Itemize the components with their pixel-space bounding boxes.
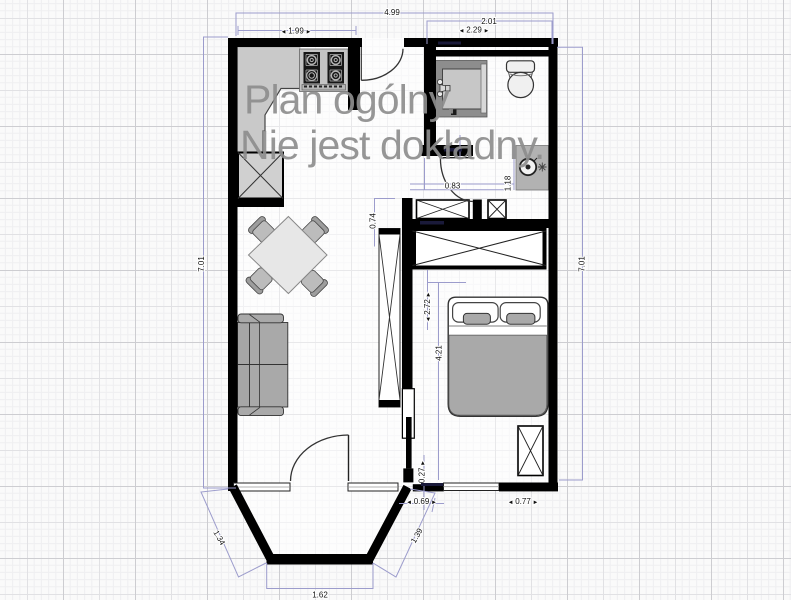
svg-text:4.21: 4.21 <box>435 345 444 361</box>
svg-text:1.18: 1.18 <box>504 175 513 191</box>
svg-text:4.99: 4.99 <box>384 8 400 17</box>
svg-text:1.62: 1.62 <box>312 591 328 600</box>
svg-text:2.01: 2.01 <box>481 17 497 26</box>
svg-text:Plan ogólny.: Plan ogólny. <box>244 77 456 123</box>
svg-text:Nie jest dokładny.: Nie jest dokładny. <box>240 122 544 168</box>
svg-text:7.01: 7.01 <box>577 256 586 272</box>
svg-text:0.83: 0.83 <box>445 181 461 190</box>
svg-text:7.01: 7.01 <box>197 256 206 272</box>
svg-text:0.74: 0.74 <box>369 213 378 229</box>
